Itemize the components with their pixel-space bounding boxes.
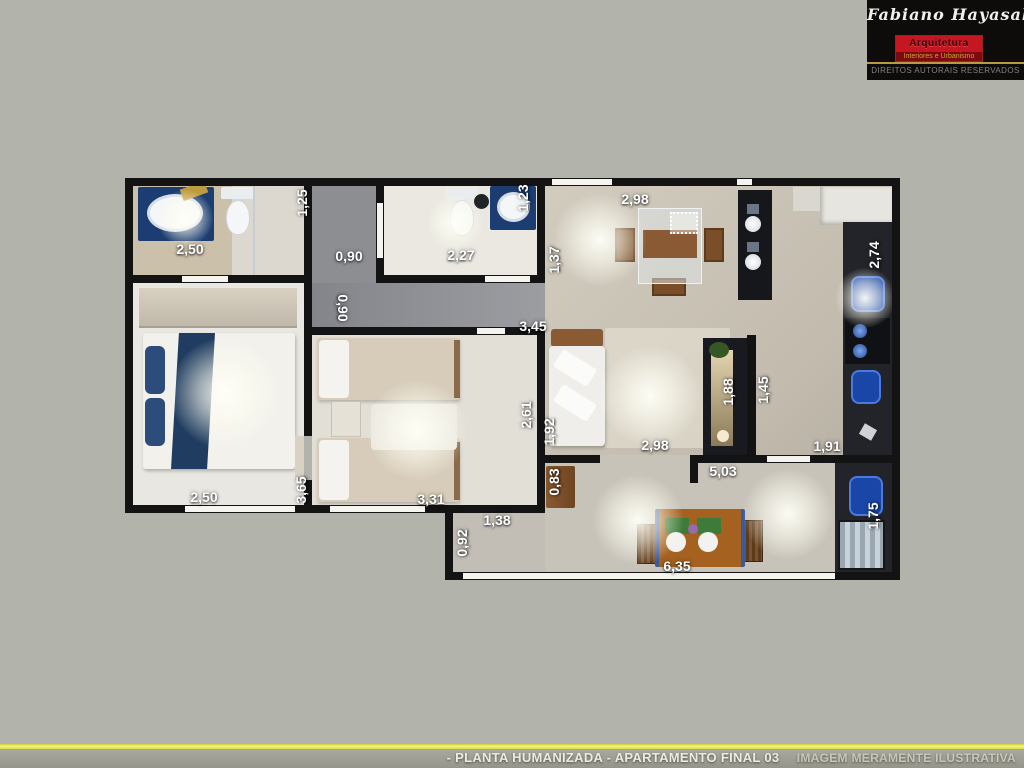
- dimension-label: 2,50: [190, 489, 217, 505]
- dimension-label: 2,27: [447, 247, 474, 263]
- dimension-label: 3,31: [417, 491, 444, 507]
- dimension-label: 2,98: [621, 191, 648, 207]
- architect-name: Fabiano Hayasaki: [867, 5, 1024, 24]
- plan-title: - PLANTA HUMANIZADA - APARTAMENTO FINAL …: [447, 750, 780, 765]
- dimension-label: 1,91: [813, 438, 840, 454]
- dimension-label: 6,35: [663, 558, 690, 574]
- architect-logo: Fabiano Hayasaki Arquitetura Interiores …: [867, 0, 1024, 80]
- disclaimer-text: IMAGEM MERAMENTE ILUSTRATIVA: [797, 751, 1016, 765]
- dimension-label: 1,75: [865, 502, 881, 529]
- dimension-label: 0,92: [454, 529, 470, 556]
- copyright-text: DIREITOS AUTORAIS RESERVADOS: [867, 66, 1024, 75]
- dimension-label: 5,03: [709, 463, 736, 479]
- dimension-label: 0,90: [335, 248, 362, 264]
- dimension-label: 1,88: [720, 378, 736, 405]
- logo-tagline: Interiores e Urbanismo: [896, 52, 982, 61]
- dimension-label: 1,23: [515, 184, 531, 211]
- dimension-label: 1,37: [546, 246, 562, 273]
- dimension-label: 0,83: [546, 468, 562, 495]
- dimension-label: 1,25: [294, 189, 310, 216]
- dimension-label: 1,45: [755, 376, 771, 403]
- dimension-label: 3,45: [519, 318, 546, 334]
- logo-field-label: Arquitetura: [896, 38, 982, 49]
- dimension-label: 1,38: [483, 512, 510, 528]
- dimension-labels-layer: 2,501,250,902,271,231,372,982,740,903,45…: [125, 178, 900, 580]
- rendered-floorplan-image: { "page": { "background": "#b2b3aa", "wa…: [0, 0, 1024, 768]
- dimension-label: 3,65: [293, 476, 309, 503]
- dimension-label: 0,90: [335, 294, 351, 321]
- dimension-label: 2,50: [176, 241, 203, 257]
- logo-red-banner: Arquitetura Interiores e Urbanismo: [895, 35, 983, 62]
- floorplan: 2,501,250,902,271,231,372,982,740,903,45…: [125, 178, 900, 580]
- dimension-label: 2,74: [866, 241, 882, 268]
- dimension-label: 2,98: [641, 437, 668, 453]
- logo-gold-divider: [867, 62, 1024, 64]
- dimension-label: 2,61: [518, 401, 534, 428]
- dimension-label: 1,92: [541, 418, 557, 445]
